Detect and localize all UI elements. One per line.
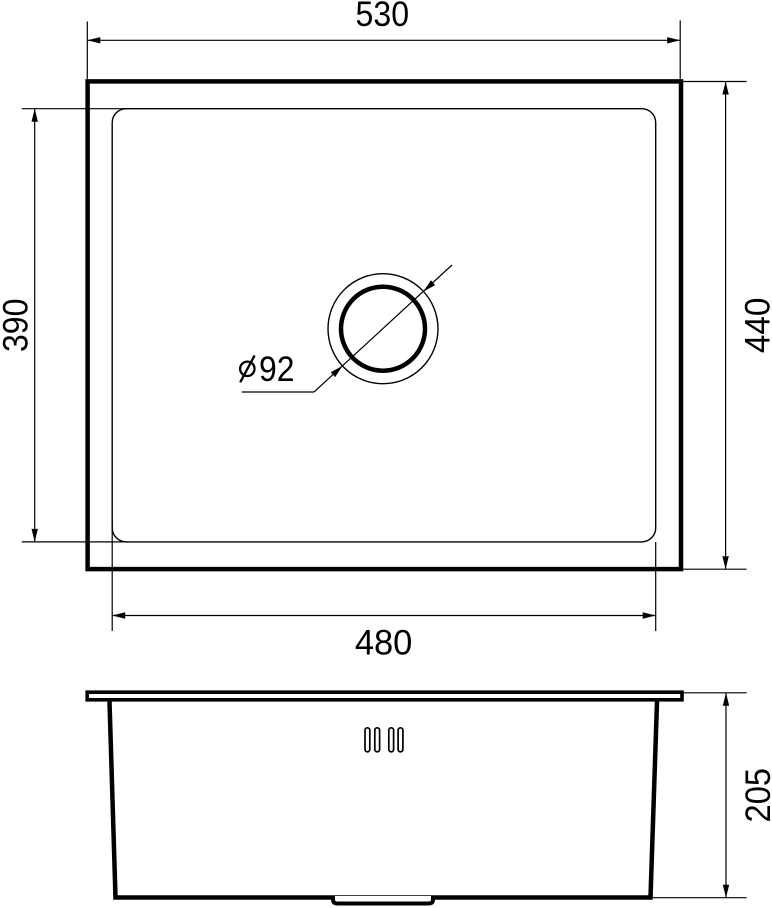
svg-text:480: 480 xyxy=(355,624,413,663)
svg-text:440: 440 xyxy=(739,298,772,354)
svg-text:205: 205 xyxy=(739,768,772,823)
svg-text:92: 92 xyxy=(259,350,295,389)
svg-text:390: 390 xyxy=(0,299,36,353)
svg-text:530: 530 xyxy=(356,0,410,34)
